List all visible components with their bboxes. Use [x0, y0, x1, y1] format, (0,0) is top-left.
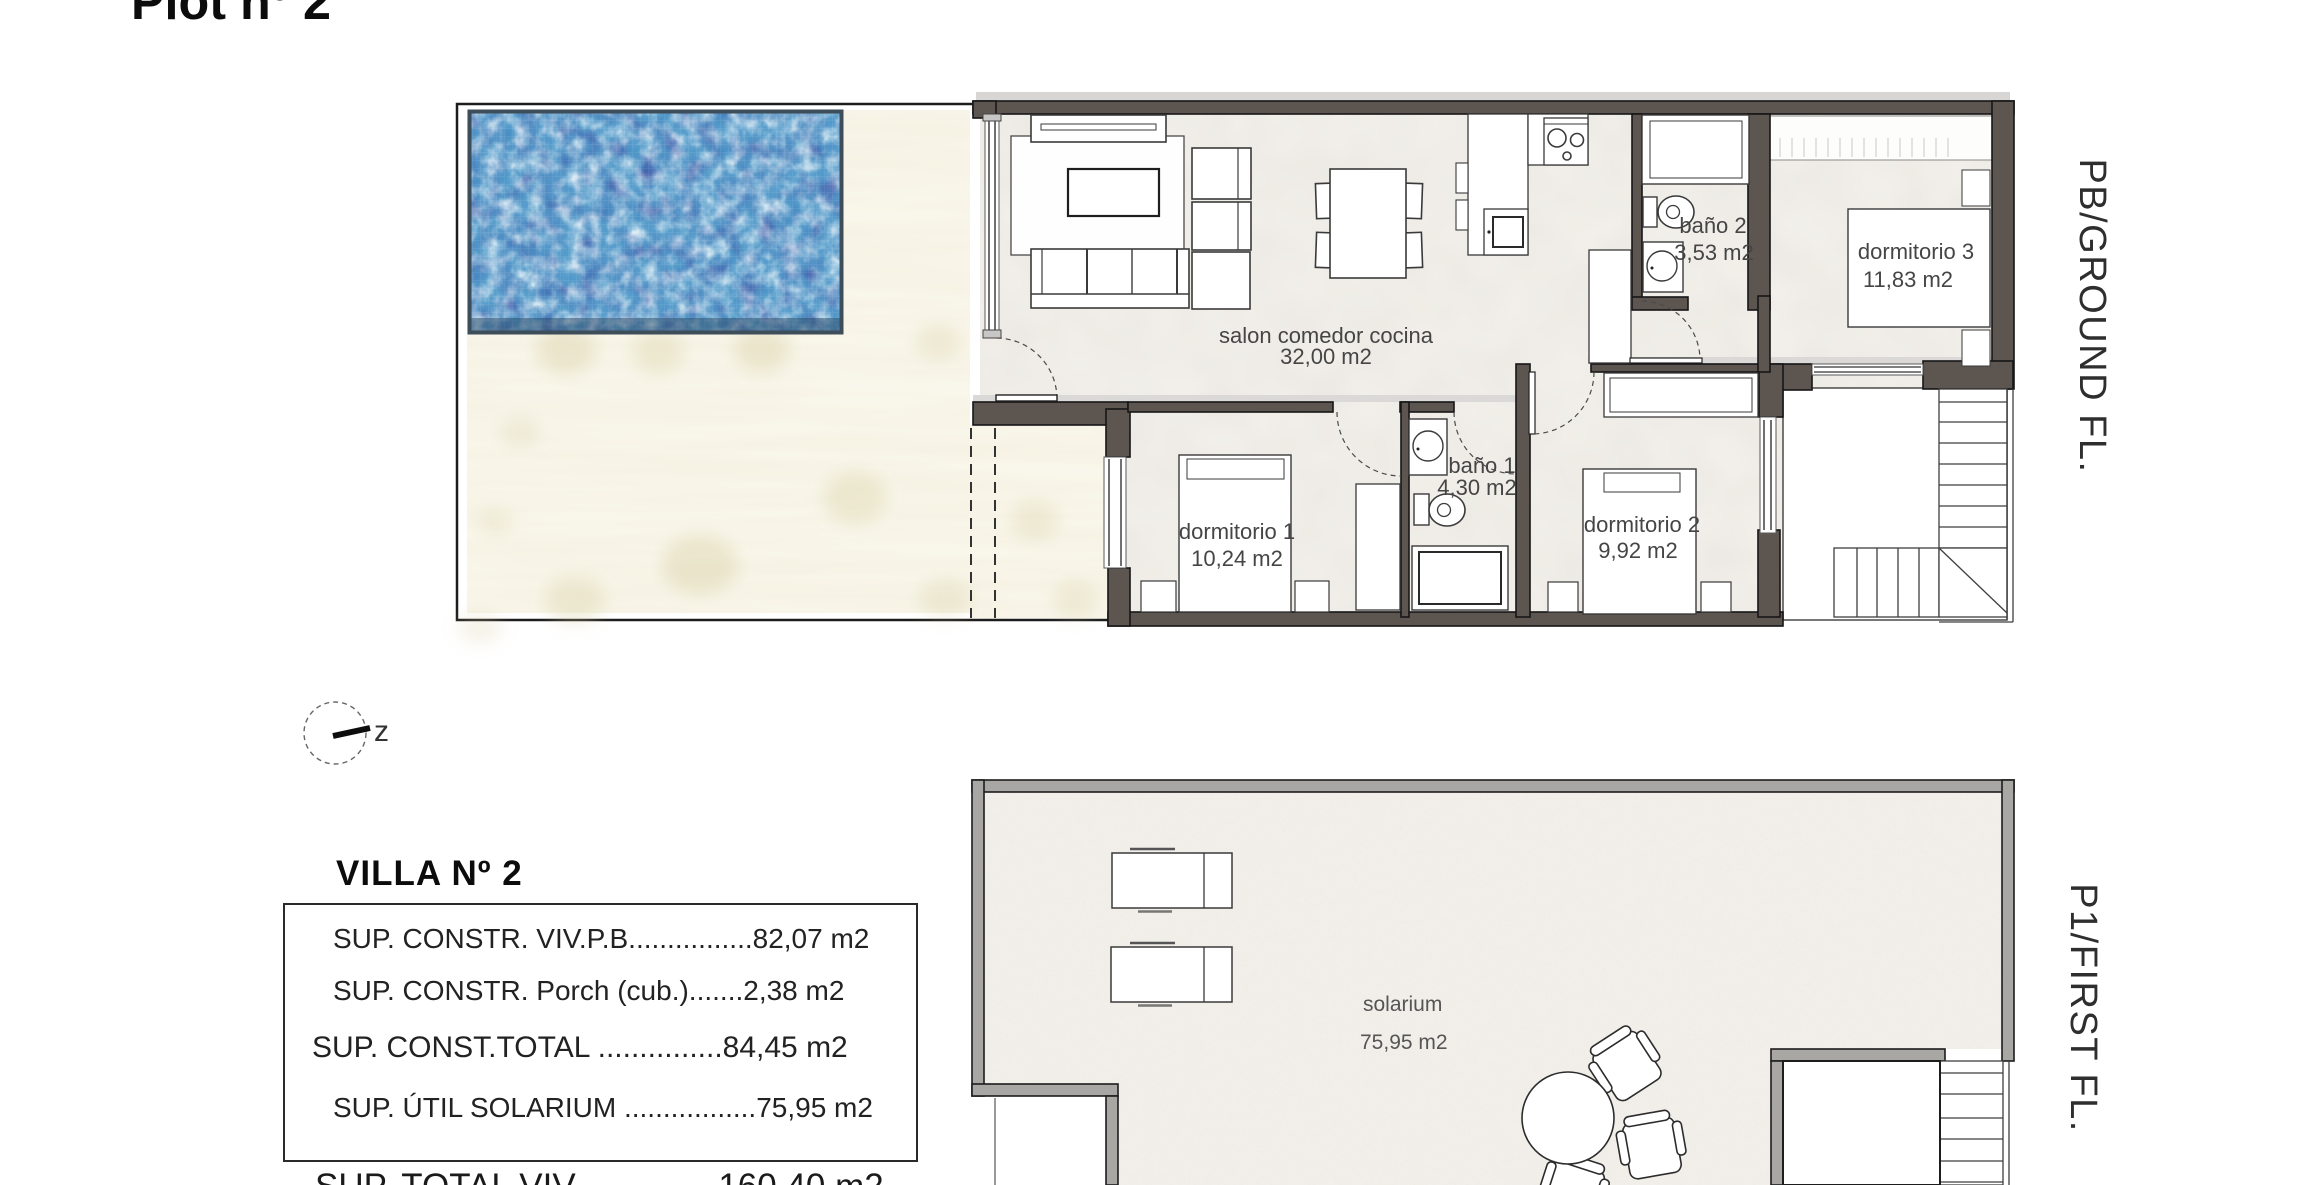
svg-text:dormitorio 1: dormitorio 1 [1179, 519, 1295, 544]
svg-text:SUP. CONST.TOTAL .............: SUP. CONST.TOTAL ...............84,45 m2 [312, 1031, 848, 1064]
svg-text:75,95 m2: 75,95 m2 [1360, 1031, 1448, 1054]
svg-text:solarium: solarium [1363, 993, 1442, 1016]
svg-text:VILLA Nº 2: VILLA Nº 2 [336, 854, 523, 893]
svg-text:9,92 m2: 9,92 m2 [1598, 538, 1678, 563]
svg-text:SUP. ÚTIL SOLARIUM ...........: SUP. ÚTIL SOLARIUM .................75,9… [333, 1092, 873, 1123]
svg-text:SUP. CONSTR. VIV.P.B..........: SUP. CONSTR. VIV.P.B................82,0… [333, 923, 869, 954]
svg-text:baño 2: baño 2 [1679, 213, 1746, 238]
svg-text:11,83 m2: 11,83 m2 [1863, 267, 1953, 292]
svg-text:SUP. TOTAL VIV...............1: SUP. TOTAL VIV...............160,40 m2 [315, 1167, 884, 1185]
svg-text:P1/FIRST FL.: P1/FIRST FL. [2062, 883, 2104, 1133]
svg-text:Plot nº 2: Plot nº 2 [131, 0, 331, 31]
svg-text:dormitorio 2: dormitorio 2 [1584, 512, 1700, 537]
svg-text:PB/GROUND FL.: PB/GROUND FL. [2071, 158, 2113, 473]
svg-text:32,00 m2: 32,00 m2 [1280, 344, 1372, 369]
svg-text:SUP. CONSTR. Porch (cub.).....: SUP. CONSTR. Porch (cub.).......2,38 m2 [333, 975, 844, 1006]
svg-text:dormitorio 3: dormitorio 3 [1858, 239, 1974, 264]
svg-text:z: z [374, 715, 389, 748]
svg-text:10,24 m2: 10,24 m2 [1191, 546, 1283, 571]
svg-text:3,53 m2: 3,53 m2 [1674, 240, 1754, 265]
svg-text:4,30 m2: 4,30 m2 [1437, 475, 1517, 500]
